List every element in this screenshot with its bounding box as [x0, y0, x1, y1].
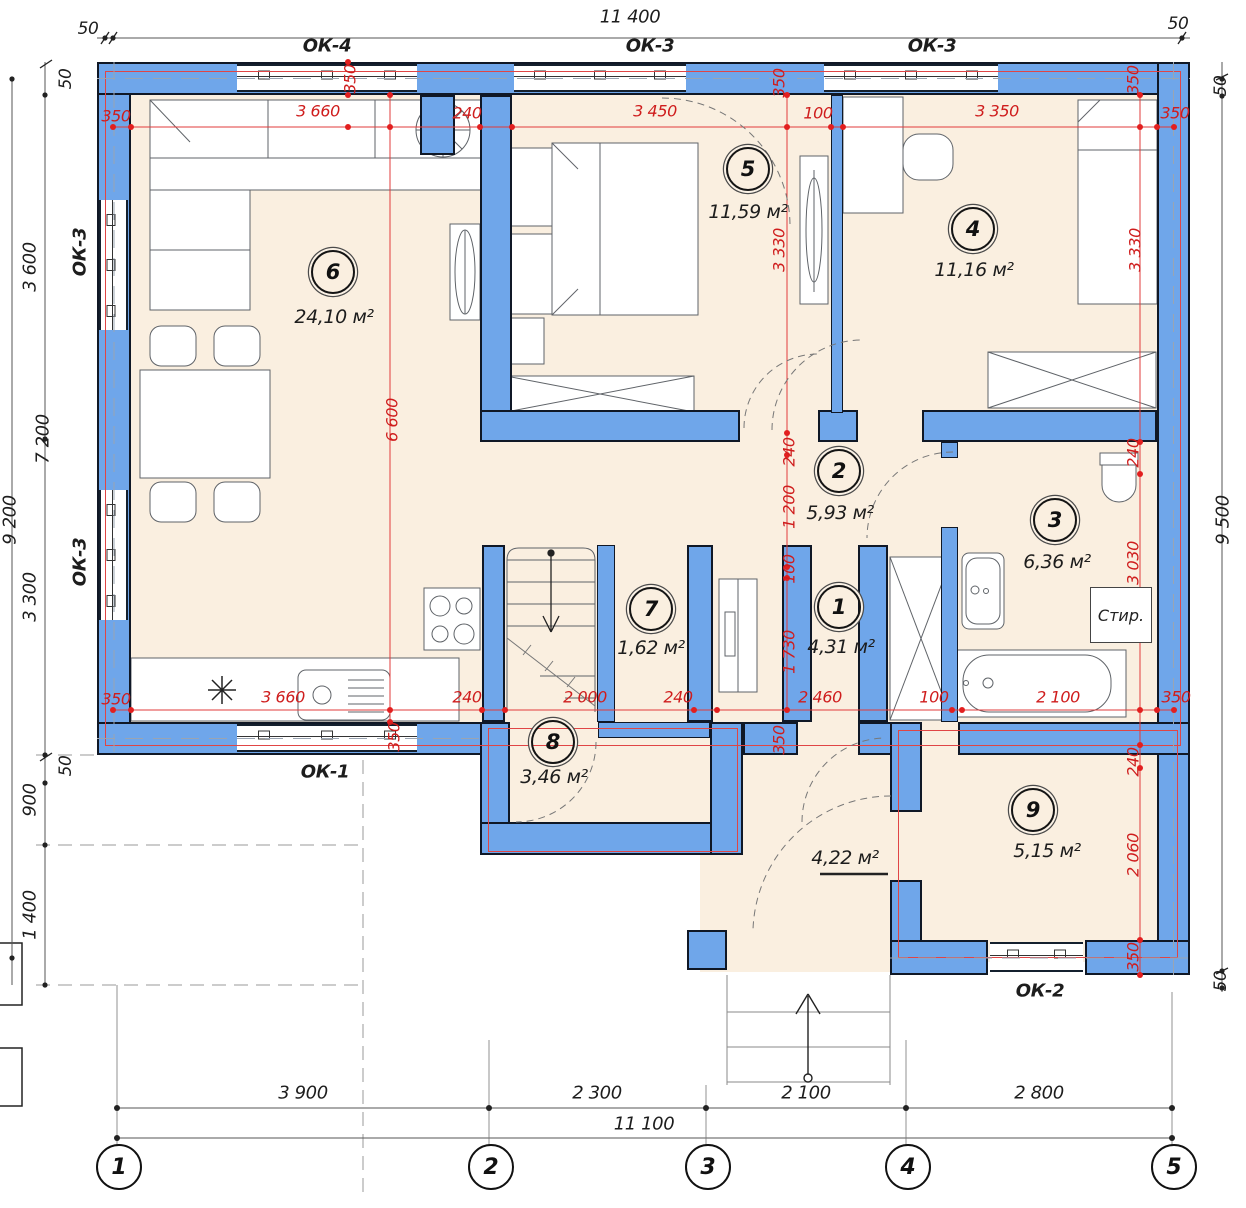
rdim-bot-100: 100 — [919, 688, 948, 707]
rdim-top-100: 100 — [803, 104, 832, 123]
rdim-topwall-350a: 350 — [341, 64, 360, 93]
dim-bottom-2800: 2 800 — [1014, 1083, 1064, 1104]
room-area-2: 5,93 м² — [806, 502, 874, 524]
room-bubble-2: 2 — [817, 449, 861, 493]
dimension-layer — [0, 0, 1246, 1208]
rdim-topwall-350c: 350 — [1124, 65, 1143, 94]
dim-left-1400: 1 400 — [20, 890, 41, 940]
dim-left-3300: 3 300 — [20, 572, 41, 622]
dim-bottom-2100: 2 100 — [781, 1083, 831, 1104]
dim-left-7200: 7 200 — [33, 414, 54, 464]
room-area-1: 4,31 м² — [807, 636, 875, 658]
dim-right-9500: 9 500 — [1213, 495, 1234, 545]
black-dim-lines — [12, 32, 1228, 1146]
rdim-bot-2100: 2 100 — [1036, 688, 1080, 707]
window-label-ok3-left2: ОК-3 — [70, 538, 91, 586]
rdim-right-350: 350 — [1124, 942, 1143, 971]
dim-right-50-bottom: 50 — [1211, 971, 1231, 992]
room-area-5: 11,59 м² — [708, 201, 787, 223]
dim-left-3600: 3 600 — [20, 242, 41, 292]
rdim-bot-240b: 240 — [663, 688, 692, 707]
dim-bottom-total: 11 100 — [614, 1114, 675, 1135]
rdim-center-1730: 1 730 — [780, 630, 799, 674]
rdim-botwall-350b: 350 — [770, 725, 789, 754]
axis-bubble-4: 4 — [885, 1144, 931, 1190]
rdim-bot-2460: 2 460 — [798, 688, 842, 707]
window-label-ok3-top2: ОК-3 — [908, 36, 956, 57]
rdim-top-3660: 3 660 — [296, 102, 340, 121]
room-area-7: 1,62 м² — [617, 637, 685, 659]
rdim-bot-350b: 350 — [1161, 688, 1190, 707]
room-area-6: 24,10 м² — [294, 306, 373, 328]
dim-left-50-top: 50 — [56, 69, 76, 90]
room-bubble-4: 4 — [951, 207, 995, 251]
rdim-top-350a: 350 — [101, 107, 130, 126]
washing-machine: Стир. — [1090, 587, 1152, 643]
rdim-bot-2000: 2 000 — [563, 688, 607, 707]
window-label-ok4: ОК-4 — [303, 36, 351, 57]
rdim-top-240: 240 — [452, 104, 481, 123]
window-label-ok1: ОК-1 — [301, 762, 349, 783]
rdim-top-350b: 350 — [1160, 104, 1189, 123]
rdim-right-240b: 240 — [1124, 747, 1143, 776]
rdim-top-3350: 3 350 — [975, 102, 1019, 121]
rdim-center-1200: 1 200 — [780, 485, 799, 529]
washing-machine-label: Стир. — [1098, 606, 1144, 625]
room-area-4: 11,16 м² — [934, 259, 1013, 281]
rdim-right-2060: 2 060 — [1124, 833, 1143, 877]
axis-bubble-1: 1 — [96, 1144, 142, 1190]
room-bubble-5: 5 — [726, 147, 770, 191]
axis-bubble-3: 3 — [685, 1144, 731, 1190]
dim-bottom-2300: 2 300 — [572, 1083, 622, 1104]
window-label-ok3-top1: ОК-3 — [626, 36, 674, 57]
dim-left-9200: 9 200 — [0, 495, 21, 545]
rdim-3330-right: 3 330 — [1126, 228, 1145, 272]
rdim-right-240a: 240 — [1124, 438, 1143, 467]
rdim-bot-240a: 240 — [452, 688, 481, 707]
room-bubble-1: 1 — [817, 585, 861, 629]
window-label-ok3-left1: ОК-3 — [70, 228, 91, 276]
room-area-8: 3,46 м² — [520, 766, 588, 788]
dim-left-900: 900 — [20, 783, 41, 816]
rdim-bot-3660: 3 660 — [261, 688, 305, 707]
rdim-center-100: 100 — [780, 554, 799, 583]
dim-top-total: 11 400 — [600, 7, 661, 28]
hall-area-label: 4,22 м² — [811, 847, 879, 869]
rdim-topwall-350b: 350 — [770, 68, 789, 97]
dim-bottom-3900: 3 900 — [278, 1083, 328, 1104]
room-bubble-7: 7 — [629, 587, 673, 631]
room-area-9: 5,15 м² — [1013, 840, 1081, 862]
rdim-top-3450: 3 450 — [633, 102, 677, 121]
dim-left-50-bottom: 50 — [56, 756, 76, 777]
rdim-bot-350a: 350 — [101, 690, 130, 709]
rdim-3330-mid: 3 330 — [770, 228, 789, 272]
axis-bubble-2: 2 — [468, 1144, 514, 1190]
floor-plan-canvas: 50 11 400 50 50 3 600 7 200 9 200 3 300 … — [0, 0, 1246, 1208]
window-label-ok2: ОК-2 — [1016, 981, 1064, 1002]
room-bubble-3: 3 — [1033, 498, 1077, 542]
rdim-center-240: 240 — [780, 437, 799, 466]
room-area-3: 6,36 м² — [1023, 551, 1091, 573]
dim-right-50-top: 50 — [1211, 76, 1231, 97]
axis-bubble-5: 5 — [1151, 1144, 1197, 1190]
room-bubble-8: 8 — [531, 720, 575, 764]
room-bubble-9: 9 — [1011, 788, 1055, 832]
dim-top-50-right: 50 — [1168, 14, 1189, 34]
dim-top-50-left: 50 — [78, 19, 99, 39]
rdim-botwall-350a: 350 — [385, 722, 404, 751]
rdim-6600: 6 600 — [383, 398, 402, 442]
room-bubble-6: 6 — [311, 250, 355, 294]
black-dim-dots — [9, 35, 1224, 1141]
rdim-right-3030: 3 030 — [1124, 541, 1143, 585]
wall-centerlines — [97, 62, 1190, 975]
